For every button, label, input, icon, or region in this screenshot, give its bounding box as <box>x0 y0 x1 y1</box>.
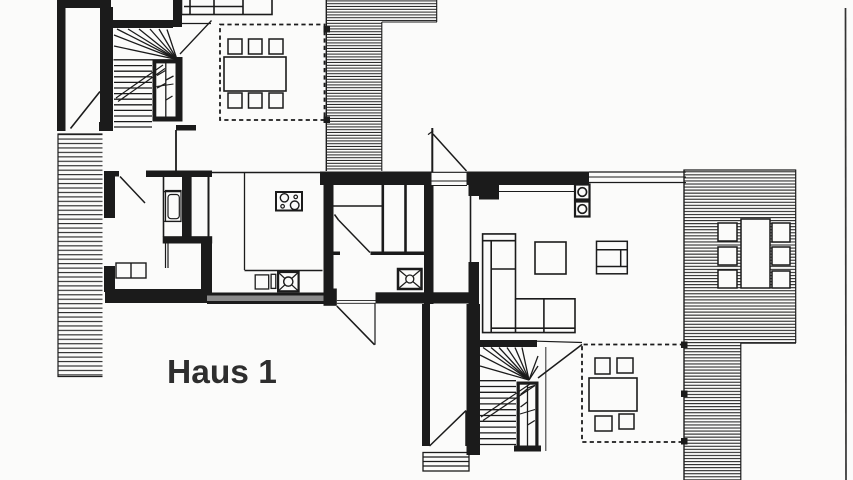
svg-text:Haus 1: Haus 1 <box>167 354 277 391</box>
